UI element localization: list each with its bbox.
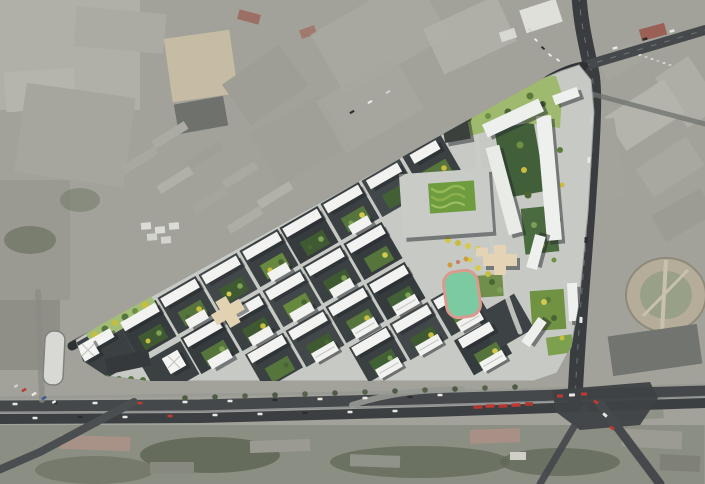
sports-field	[442, 269, 482, 319]
ellipse-shape	[60, 188, 100, 212]
rect-shape	[155, 226, 166, 234]
masterplan-aerial-svg	[0, 0, 705, 484]
rect-shape	[147, 233, 158, 241]
rect-shape	[350, 454, 400, 468]
transit-loop-island	[43, 331, 66, 386]
rect-shape	[494, 245, 506, 275]
path-shape	[38, 292, 42, 400]
landscaped-courtyard	[428, 180, 476, 213]
rect-shape	[510, 452, 526, 460]
rect-shape	[141, 222, 152, 230]
rect-shape	[161, 236, 172, 244]
ellipse-shape	[4, 226, 56, 254]
rect-shape	[660, 454, 701, 472]
rect-shape	[14, 83, 135, 187]
screenshot-root	[0, 0, 705, 484]
rect-shape	[150, 462, 194, 474]
rect-shape	[73, 6, 166, 54]
ellipse-shape	[35, 456, 155, 484]
rect-shape	[250, 439, 310, 453]
rect-shape	[476, 248, 488, 257]
rect-shape	[470, 428, 520, 444]
rect-shape	[169, 222, 180, 230]
